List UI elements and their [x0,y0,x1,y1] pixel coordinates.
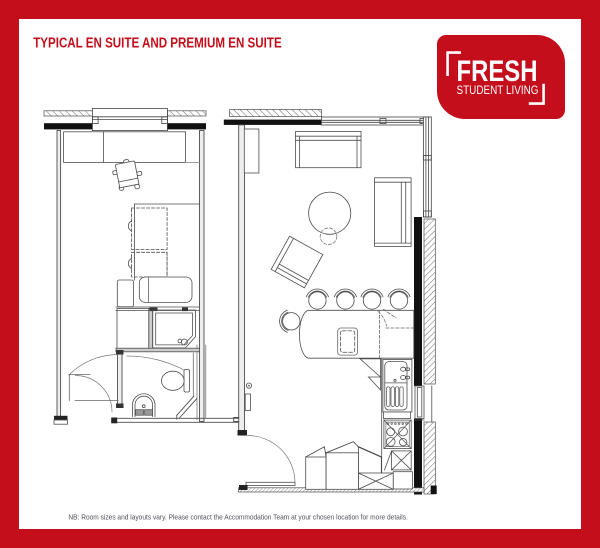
svg-text:TYPICAL EN SUITE AND PREMIUM E: TYPICAL EN SUITE AND PREMIUM EN SUITE [33,36,282,52]
svg-text:NB: Room sizes and layouts var: NB: Room sizes and layouts vary. Please … [68,512,408,521]
svg-text:STUDENT LIVING: STUDENT LIVING [457,85,539,97]
svg-text:FRESH: FRESH [457,55,538,88]
